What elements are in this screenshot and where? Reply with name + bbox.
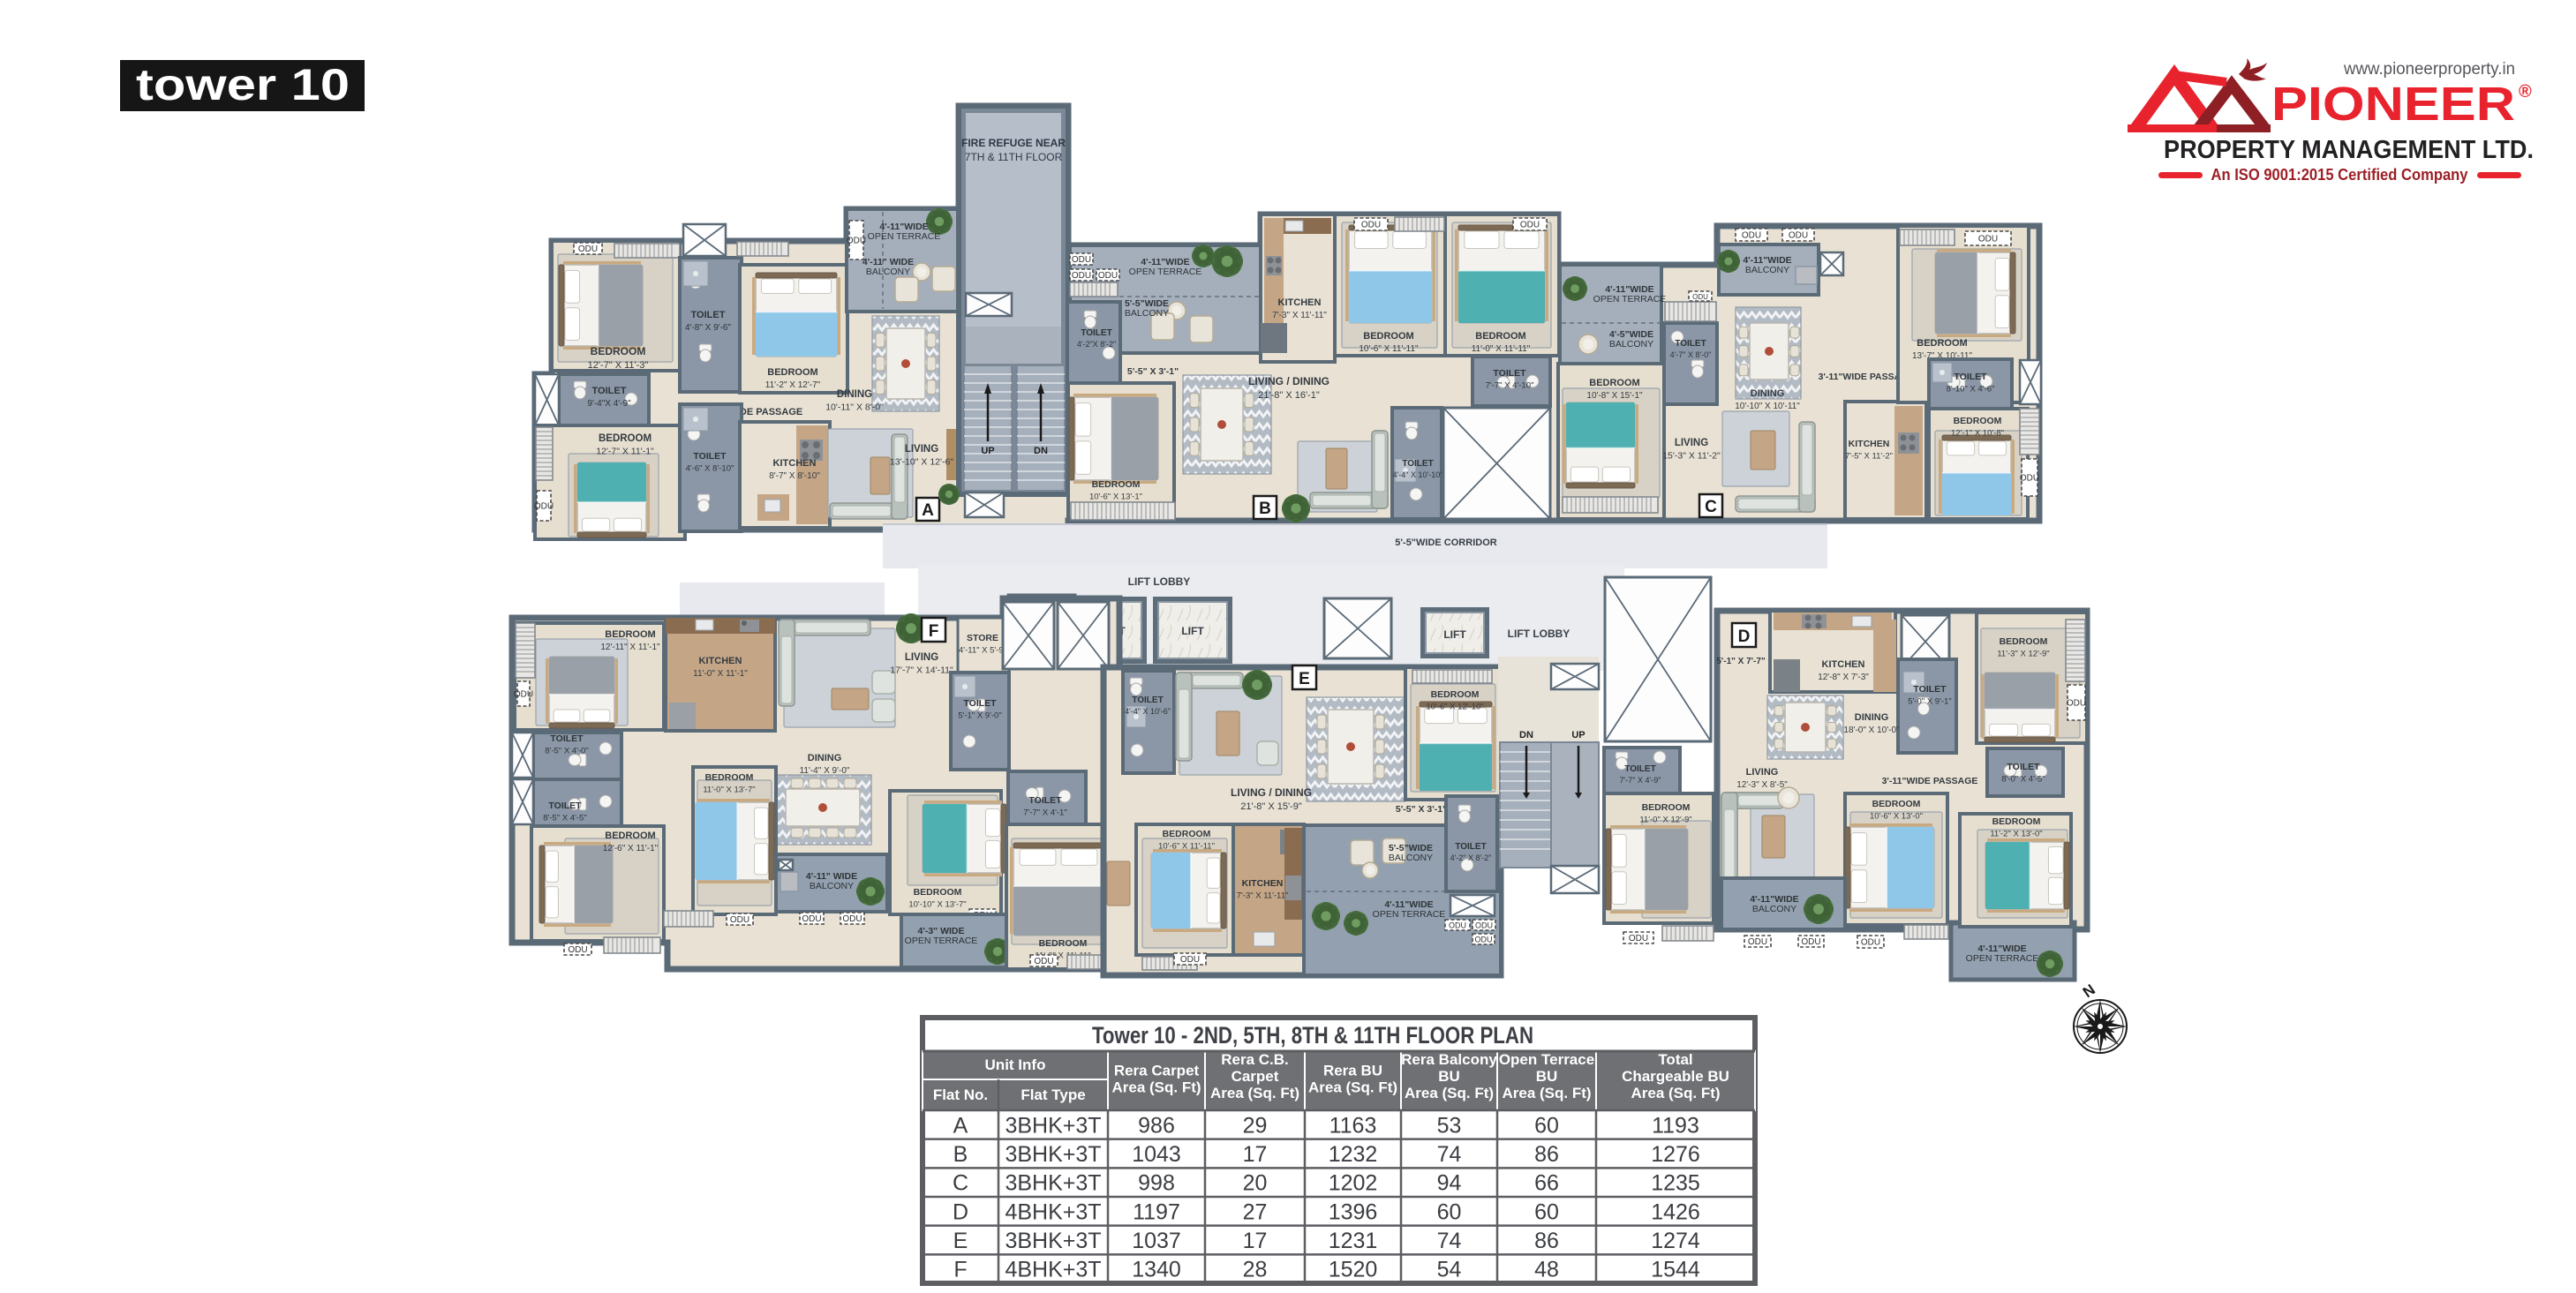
svg-text:BEDROOM: BEDROOM [599,433,652,444]
svg-text:ODU: ODU [1629,934,1648,943]
svg-text:BEDROOM: BEDROOM [1431,689,1480,700]
svg-text:17: 17 [1243,1229,1268,1253]
svg-text:11'-0" X 11'-1": 11'-0" X 11'-1" [693,669,748,679]
svg-text:11'-4" X 9'-0": 11'-4" X 9'-0" [800,766,850,776]
svg-text:998: 998 [1138,1171,1175,1196]
svg-text:54: 54 [1437,1258,1462,1282]
svg-text:LIVING: LIVING [1746,767,1779,778]
svg-text:ODU: ODU [1861,938,1880,948]
svg-text:PROPERTY MANAGEMENT LTD.: PROPERTY MANAGEMENT LTD. [2164,136,2534,164]
svg-text:1197: 1197 [1133,1199,1180,1224]
svg-text:BEDROOM: BEDROOM [2000,636,2048,647]
svg-text:KITCHEN: KITCHEN [1822,659,1865,670]
svg-text:OPEN TERRACE: OPEN TERRACE [1129,267,1202,277]
svg-text:ODU: ODU [1978,235,1998,244]
svg-text:17: 17 [1243,1142,1268,1167]
svg-text:1544: 1544 [1651,1258,1700,1282]
svg-text:5'-0" X 9'-1": 5'-0" X 9'-1" [1908,697,1951,707]
svg-text:3BHK+3T: 3BHK+3T [1005,1113,1101,1138]
svg-text:DINING: DINING [1751,388,1785,399]
svg-text:4'-11" X 5'-9": 4'-11" X 5'-9" [959,646,1006,656]
svg-text:10'-10" X 10'-11": 10'-10" X 10'-11" [1735,402,1800,411]
svg-text:5'-5" X 3'-1": 5'-5" X 3'-1" [1396,804,1447,815]
svg-text:7'-5" X 11'-2": 7'-5" X 11'-2" [1845,452,1893,462]
svg-text:BEDROOM: BEDROOM [605,831,655,841]
svg-text:11'-2" X 13'-0": 11'-2" X 13'-0" [1990,830,2042,839]
svg-text:4BHK+3T: 4BHK+3T [1005,1199,1101,1224]
svg-text:TOILET: TOILET [1132,695,1163,705]
svg-text:60: 60 [1534,1199,1559,1224]
svg-text:20: 20 [1243,1171,1268,1196]
svg-text:TOILET: TOILET [1493,368,1526,379]
svg-text:4'-4" X 10'-6": 4'-4" X 10'-6" [1125,707,1171,716]
svg-text:KITCHEN: KITCHEN [773,458,817,469]
svg-text:12'-7" X 11'-1": 12'-7" X 11'-1" [596,447,654,457]
svg-text:ODU: ODU [2020,474,2039,484]
svg-text:TOILET: TOILET [1954,372,1987,382]
svg-text:BEDROOM: BEDROOM [1954,416,2002,426]
svg-text:21'-8" X 15'-9": 21'-8" X 15'-9" [1240,801,1302,812]
svg-text:1232: 1232 [1329,1142,1378,1167]
svg-text:TOILET: TOILET [1913,684,1947,695]
svg-text:STORE: STORE [967,633,998,643]
svg-text:TOILET: TOILET [1624,764,1655,774]
svg-text:Area (Sq. Ft): Area (Sq. Ft) [1405,1085,1494,1101]
svg-text:11'-3" X 12'-9": 11'-3" X 12'-9" [1997,650,2049,659]
svg-text:TOILET: TOILET [1455,842,1486,852]
svg-text:ODU: ODU [2067,699,2086,709]
svg-text:F: F [929,622,939,641]
svg-text:BEDROOM: BEDROOM [1589,378,1639,388]
svg-text:A: A [922,501,934,520]
svg-text:TOILET: TOILET [1028,795,1062,806]
svg-text:BALCONY: BALCONY [866,267,910,277]
svg-text:4'-8" X 9'-6": 4'-8" X 9'-6" [685,323,732,333]
svg-text:BEDROOM: BEDROOM [605,629,655,640]
svg-text:4'-4" X 10'-10": 4'-4" X 10'-10" [1393,470,1443,479]
svg-text:BALCONY: BALCONY [1389,853,1433,863]
svg-text:4BHK+3T: 4BHK+3T [1005,1258,1101,1282]
svg-text:1520: 1520 [1329,1258,1378,1282]
svg-text:ODU: ODU [1789,231,1808,241]
svg-text:BEDROOM: BEDROOM [1039,938,1088,949]
svg-text:74: 74 [1437,1229,1462,1253]
svg-text:ODU: ODU [730,915,749,925]
svg-text:TOILET: TOILET [1081,328,1111,338]
svg-text:KITCHEN: KITCHEN [699,656,742,666]
svg-text:ODU: ODU [1520,221,1540,230]
svg-text:5'-5" X 3'-1": 5'-5" X 3'-1" [1127,366,1179,377]
svg-text:BEDROOM: BEDROOM [1872,799,1921,809]
svg-text:1231: 1231 [1329,1229,1378,1253]
svg-text:FIRE REFUGE NEAR: FIRE REFUGE NEAR [961,137,1066,149]
svg-text:86: 86 [1534,1229,1559,1253]
svg-text:E: E [953,1229,968,1253]
svg-text:D: D [953,1199,968,1224]
svg-text:53: 53 [1437,1113,1462,1138]
svg-text:18'-0" X 10'-0": 18'-0" X 10'-0" [1843,725,1900,735]
svg-text:TOILET: TOILET [1675,339,1706,349]
svg-text:3BHK+3T: 3BHK+3T [1005,1171,1101,1196]
svg-text:Area (Sq. Ft): Area (Sq. Ft) [1111,1079,1201,1096]
svg-text:1202: 1202 [1329,1171,1378,1196]
svg-text:UP: UP [981,446,994,456]
svg-text:ODU: ODU [1034,957,1053,966]
svg-text:10'-6" X 11'-11": 10'-6" X 11'-11" [1158,842,1215,852]
svg-text:74: 74 [1437,1142,1462,1167]
svg-text:DN: DN [1519,730,1533,740]
svg-text:Flat No.: Flat No. [933,1086,988,1103]
svg-text:1043: 1043 [1132,1142,1181,1167]
svg-text:Rera C.B.: Rera C.B. [1221,1051,1289,1068]
svg-text:8'-7" X 8'-10": 8'-7" X 8'-10" [769,471,820,481]
svg-text:4'-6" X 8'-10": 4'-6" X 8'-10" [686,464,734,474]
svg-text:TOILET: TOILET [550,733,584,744]
svg-text:OPEN TERRACE: OPEN TERRACE [868,231,941,242]
svg-text:DINING: DINING [808,753,842,763]
svg-text:17'-7" X 14'-11": 17'-7" X 14'-11" [890,665,953,676]
svg-text:ODU: ODU [1475,936,1493,944]
svg-text:12'-3" X 8'-5": 12'-3" X 8'-5" [1736,780,1788,790]
svg-text:3BHK+3T: 3BHK+3T [1005,1142,1101,1167]
svg-text:ODU: ODU [1072,271,1091,281]
svg-text:BEDROOM: BEDROOM [1363,331,1413,342]
svg-text:7'-7" X 4'-10": 7'-7" X 4'-10" [1486,381,1534,391]
svg-text:ODU: ODU [534,502,554,512]
svg-text:B: B [1259,500,1271,518]
svg-text:ODU: ODU [1475,921,1493,930]
svg-text:D: D [1738,628,1751,646]
svg-text:BEDROOM: BEDROOM [767,367,817,378]
svg-text:ODU: ODU [842,914,862,924]
svg-text:BEDROOM: BEDROOM [705,772,754,783]
svg-text:4'-2"X 8'-2": 4'-2"X 8'-2" [1077,340,1116,349]
svg-text:Area (Sq. Ft): Area (Sq. Ft) [1308,1079,1397,1096]
svg-text:OPEN TERRACE: OPEN TERRACE [905,936,978,946]
svg-text:1340: 1340 [1132,1258,1181,1282]
svg-text:12'-11" X 11'-1": 12'-11" X 11'-1" [600,643,660,652]
svg-text:TOILET: TOILET [691,310,726,320]
svg-text:DINING: DINING [1855,712,1889,723]
svg-text:TOILET: TOILET [2007,762,2040,772]
svg-text:1037: 1037 [1132,1229,1181,1253]
svg-text:12'-1" X 10'-8": 12'-1" X 10'-8" [1951,429,2004,439]
svg-text:Area (Sq. Ft): Area (Sq. Ft) [1502,1085,1591,1101]
svg-text:tower 10: tower 10 [136,60,350,109]
svg-text:5'-5"WIDE CORRIDOR: 5'-5"WIDE CORRIDOR [1395,537,1496,548]
svg-text:ODU: ODU [1098,271,1118,281]
svg-text:10'-6" X 13'-1": 10'-6" X 13'-1" [1089,492,1142,502]
svg-text:ODU: ODU [1748,937,1767,947]
svg-text:12'-8" X 7'-3": 12'-8" X 7'-3" [1818,673,1869,682]
svg-text:86: 86 [1534,1142,1559,1167]
svg-text:1163: 1163 [1329,1113,1377,1138]
svg-text:KITCHEN: KITCHEN [1242,878,1284,889]
svg-text:7'-3" X 11'-11": 7'-3" X 11'-11" [1237,891,1289,901]
svg-text:1235: 1235 [1651,1171,1700,1196]
svg-text:Rera Carpet: Rera Carpet [1114,1063,1200,1079]
svg-text:BEDROOM: BEDROOM [1642,802,1691,813]
svg-text:8'-0" X 4'-5": 8'-0" X 4'-5" [2001,775,2045,785]
svg-text:OPEN TERRACE: OPEN TERRACE [1966,953,2039,964]
svg-text:BEDROOM: BEDROOM [1992,816,2041,827]
svg-text:®: ® [2519,82,2532,101]
svg-text:5'-1" X 7'-7": 5'-1" X 7'-7" [1716,657,1766,666]
svg-text:Area (Sq. Ft): Area (Sq. Ft) [1210,1085,1299,1101]
svg-text:ODU: ODU [578,244,598,254]
svg-text:28: 28 [1243,1258,1268,1282]
svg-text:ODU: ODU [1742,231,1761,241]
svg-text:BEDROOM: BEDROOM [1163,829,1211,839]
svg-text:Area (Sq. Ft): Area (Sq. Ft) [1631,1085,1720,1101]
svg-text:11'-0" X 11'-11": 11'-0" X 11'-11" [1472,344,1531,354]
svg-text:UP: UP [1571,730,1585,740]
svg-text:7TH & 11TH FLOOR: 7TH & 11TH FLOOR [965,151,1063,163]
svg-text:Open Terrace: Open Terrace [1499,1051,1594,1068]
svg-text:ODU: ODU [1361,221,1381,230]
svg-text:TOILET: TOILET [963,698,997,709]
svg-text:8'-10" X 4'-6": 8'-10" X 4'-6" [1947,385,1995,395]
svg-text:5'-1" X 9'-0": 5'-1" X 9'-0" [958,711,1001,721]
svg-text:ODU: ODU [802,914,821,924]
svg-text:BEDROOM: BEDROOM [591,345,646,357]
svg-text:8'-5" X 4'-0": 8'-5" X 4'-0" [545,747,588,756]
svg-text:29: 29 [1243,1113,1268,1138]
svg-text:BEDROOM: BEDROOM [914,887,962,898]
svg-text:LIFT LOBBY: LIFT LOBBY [1508,628,1570,640]
svg-text:15'-3" X 11'-2": 15'-3" X 11'-2" [1662,451,1721,462]
svg-text:BEDROOM: BEDROOM [1475,331,1525,342]
svg-text:1426: 1426 [1651,1199,1700,1224]
svg-text:C: C [1705,498,1717,516]
svg-text:BALCONY: BALCONY [810,881,854,891]
svg-text:BEDROOM: BEDROOM [1092,479,1141,490]
svg-text:10'-8" X 15'-1": 10'-8" X 15'-1" [1586,391,1643,401]
svg-text:12'-7" X 11'-3": 12'-7" X 11'-3" [588,360,649,371]
svg-text:TOILET: TOILET [693,451,727,462]
svg-text:Chargeable BU: Chargeable BU [1622,1068,1729,1085]
svg-text:11'-0" X 12'-9": 11'-0" X 12'-9" [1639,816,1691,825]
svg-text:LIFT: LIFT [1181,625,1204,637]
svg-text:3BHK+3T: 3BHK+3T [1005,1229,1101,1253]
svg-text:7'-7" X 4'-1": 7'-7" X 4'-1" [1023,808,1066,818]
svg-text:11'-2" X 12'-7": 11'-2" X 12'-7" [765,380,821,390]
svg-text:BALCONY: BALCONY [1125,308,1169,319]
svg-text:LIVING / DINING: LIVING / DINING [1248,375,1329,387]
svg-text:27: 27 [1243,1199,1268,1224]
svg-text:ODU: ODU [1180,955,1200,965]
svg-text:10'-6" X 12'-10": 10'-6" X 12'-10" [1426,703,1483,712]
svg-text:7'-7" X 4'-9": 7'-7" X 4'-9" [1620,776,1661,785]
svg-text:Carpet: Carpet [1232,1068,1279,1085]
svg-text:9'-4"X 4'-9": 9'-4"X 4'-9" [587,399,631,409]
svg-text:Flat Type: Flat Type [1021,1086,1085,1103]
svg-text:ODU: ODU [1449,921,1466,930]
svg-text:Rera BU: Rera BU [1323,1063,1382,1079]
svg-text:LIFT: LIFT [1443,628,1466,641]
svg-text:66: 66 [1534,1171,1559,1196]
svg-text:C: C [953,1171,968,1196]
svg-text:ODU: ODU [514,690,533,700]
svg-text:ODU: ODU [568,945,587,955]
svg-text:LIVING: LIVING [905,652,938,663]
svg-text:B: B [953,1142,968,1167]
svg-text:BALCONY: BALCONY [1609,339,1653,350]
svg-text:4'-2" X 8'-2": 4'-2" X 8'-2" [1450,853,1492,862]
svg-text:Rera Balcony: Rera Balcony [1401,1051,1497,1068]
svg-text:BEDROOM: BEDROOM [1917,338,1967,349]
svg-text:1274: 1274 [1651,1229,1700,1253]
svg-text:KITCHEN: KITCHEN [1278,297,1322,308]
svg-text:13'-10" X 12'-6": 13'-10" X 12'-6" [890,457,953,468]
svg-text:F: F [953,1258,967,1282]
svg-text:OPEN TERRACE: OPEN TERRACE [1593,294,1667,304]
svg-text:LIVING: LIVING [1675,438,1708,448]
svg-text:ODU: ODU [1692,293,1708,301]
svg-text:4'-7" X 8'-0": 4'-7" X 8'-0" [1670,350,1712,359]
svg-text:TOILET: TOILET [592,386,627,396]
svg-text:KITCHEN: KITCHEN [1849,439,1890,449]
svg-text:TOILET: TOILET [548,801,582,811]
svg-text:Tower 10 - 2ND, 5TH, 8TH & 11T: Tower 10 - 2ND, 5TH, 8TH & 11TH FLOOR PL… [1092,1022,1533,1049]
svg-text:E: E [1299,670,1310,688]
svg-text:An ISO 9001:2015 Certified Com: An ISO 9001:2015 Certified Company [2211,166,2468,184]
svg-text:Total: Total [1658,1051,1692,1068]
svg-text:www.pioneerproperty.in: www.pioneerproperty.in [2343,60,2515,79]
svg-text:986: 986 [1138,1113,1175,1138]
svg-text:1276: 1276 [1651,1142,1700,1167]
svg-text:94: 94 [1437,1171,1462,1196]
svg-text:LIVING / DINING: LIVING / DINING [1231,786,1312,799]
svg-text:ODU: ODU [1072,255,1091,265]
svg-text:7'-3" X 11'-11": 7'-3" X 11'-11" [1272,311,1327,320]
svg-text:11'-0" X 13'-7": 11'-0" X 13'-7" [703,786,755,795]
svg-text:10'-6" X 13'-0": 10'-6" X 13'-0" [1870,812,1923,822]
svg-text:10'-10" X 13'-7": 10'-10" X 13'-7" [908,900,966,910]
svg-text:PIONEER: PIONEER [2271,78,2515,131]
svg-text:1193: 1193 [1652,1113,1699,1138]
svg-text:OPEN TERRACE: OPEN TERRACE [1373,909,1446,920]
svg-text:BU: BU [1438,1068,1460,1085]
svg-text:A: A [953,1113,968,1138]
svg-text:Unit Info: Unit Info [985,1056,1046,1073]
svg-text:BALCONY: BALCONY [1745,265,1789,275]
svg-text:60: 60 [1534,1113,1559,1138]
svg-text:60: 60 [1437,1199,1462,1224]
svg-text:3'-11"WIDE PASSAGE: 3'-11"WIDE PASSAGE [1882,776,1978,786]
svg-text:10'-6" X 11'-11": 10'-6" X 11'-11" [1359,344,1419,354]
svg-text:1396: 1396 [1329,1199,1378,1224]
svg-text:10'-11" X 8'-0": 10'-11" X 8'-0" [825,402,884,413]
svg-text:DN: DN [1034,446,1048,456]
svg-text:12'-6" X 11'-1": 12'-6" X 11'-1" [603,844,659,853]
svg-text:LIFT LOBBY: LIFT LOBBY [1128,575,1191,588]
svg-text:48: 48 [1534,1258,1559,1282]
svg-text:DINING: DINING [837,389,872,400]
svg-text:21'-8" X 16'-1": 21'-8" X 16'-1" [1258,390,1320,401]
svg-text:BU: BU [1536,1068,1558,1085]
svg-text:ODU: ODU [1801,937,1820,947]
svg-text:LIVING: LIVING [905,444,938,455]
svg-text:ODU: ODU [847,237,866,246]
svg-text:8'-5" X 4'-5": 8'-5" X 4'-5" [543,814,586,823]
svg-text:BALCONY: BALCONY [1752,904,1796,914]
svg-text:TOILET: TOILET [1402,459,1433,469]
